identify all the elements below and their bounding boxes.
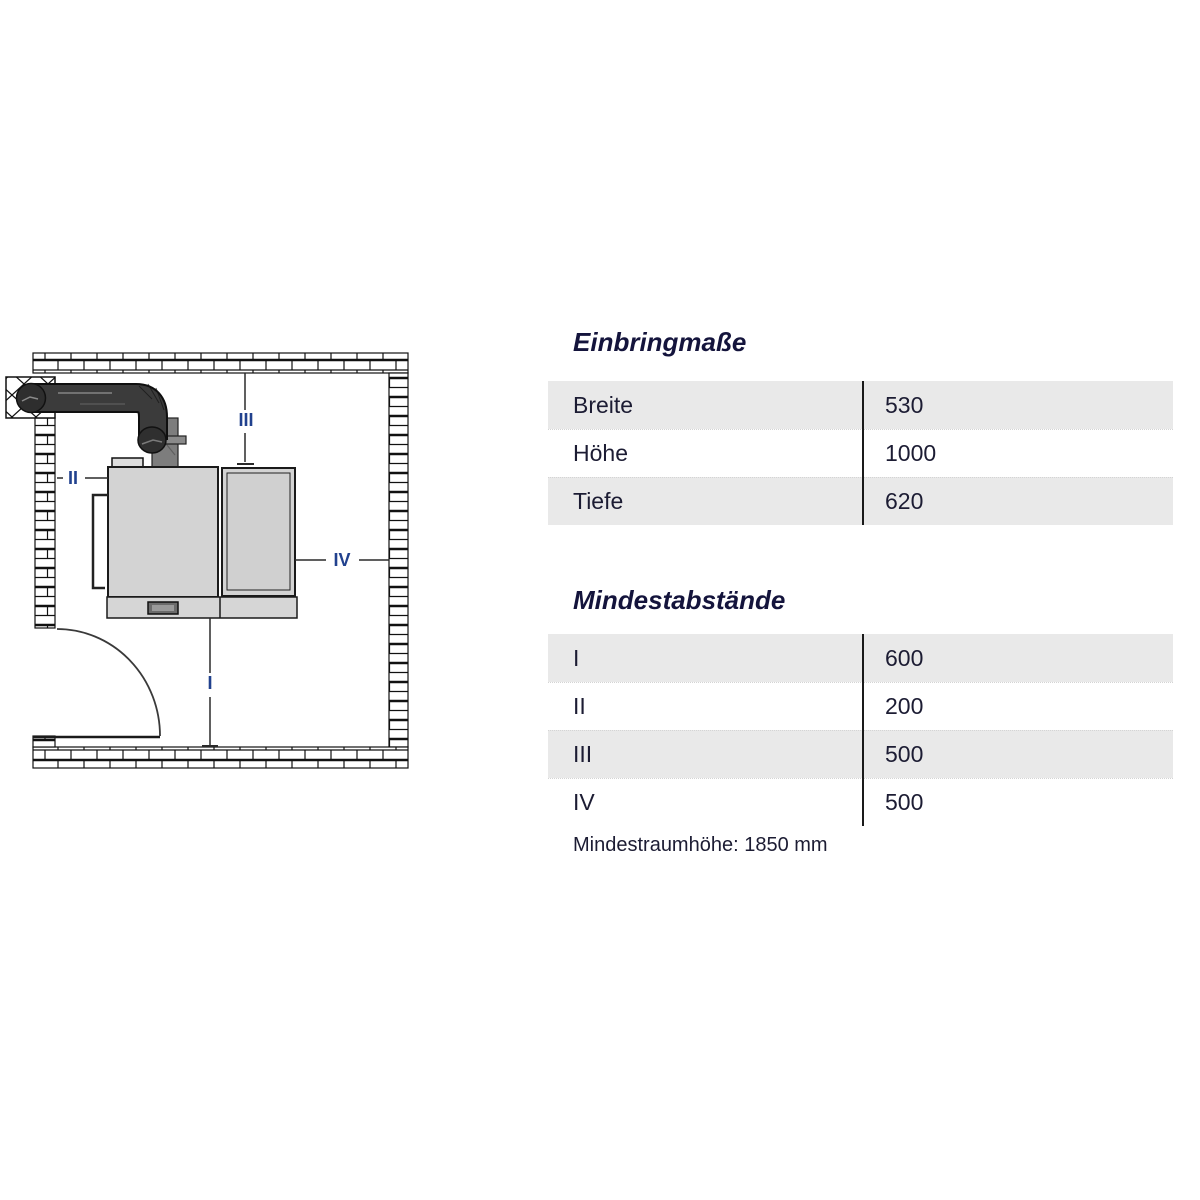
- row-value: 500: [862, 789, 923, 816]
- table-row: I 600: [548, 634, 1173, 682]
- row-value: 500: [862, 741, 923, 768]
- boiler: [93, 458, 297, 618]
- table-row: Höhe 1000: [548, 429, 1173, 477]
- right-wall: [389, 373, 408, 747]
- table-row: IV 500: [548, 778, 1173, 826]
- table-row: II 200: [548, 682, 1173, 730]
- table-row: Breite 530: [548, 381, 1173, 429]
- einbringmasse-title: Einbringmaße: [573, 327, 1173, 357]
- installation-room-diagram: III II IV I: [0, 340, 440, 780]
- row-value: 200: [862, 693, 923, 720]
- top-wall: [33, 353, 408, 373]
- table-column-divider: [862, 381, 864, 525]
- table-column-divider: [862, 634, 864, 826]
- boiler-right-panel-inset: [227, 473, 290, 590]
- row-label: I: [548, 645, 862, 672]
- left-wall: [35, 418, 55, 628]
- mindestabstaende-table: I 600 II 200 III 500 IV 500: [548, 634, 1173, 826]
- room-walls: [33, 353, 408, 768]
- row-label: Breite: [548, 392, 862, 419]
- dimension-label-i: I: [207, 673, 212, 693]
- dimension-label-ii: II: [68, 468, 78, 488]
- row-value: 1000: [862, 440, 936, 467]
- row-value: 530: [862, 392, 923, 419]
- page-canvas: III II IV I Einbringmaße Breite 530 Höhe…: [0, 0, 1200, 1200]
- boiler-base: [107, 597, 297, 618]
- boiler-name-plate-inset: [152, 605, 174, 611]
- row-label: IV: [548, 789, 862, 816]
- dimensions-content: Einbringmaße Breite 530 Höhe 1000 Tiefe …: [548, 327, 1173, 857]
- row-label: Tiefe: [548, 488, 862, 515]
- boiler-side-pipe: [93, 495, 108, 588]
- row-value: 620: [862, 488, 923, 515]
- bottom-wall: [33, 747, 408, 768]
- table-row: Tiefe 620: [548, 477, 1173, 525]
- boiler-left-panel: [108, 467, 218, 597]
- row-label: III: [548, 741, 862, 768]
- dimension-label-iii: III: [238, 410, 253, 430]
- door: [33, 629, 160, 737]
- boiler-top-fitting: [112, 458, 143, 467]
- einbringmasse-table: Breite 530 Höhe 1000 Tiefe 620: [548, 381, 1173, 525]
- row-label: II: [548, 693, 862, 720]
- mindestabstaende-title: Mindestabstände: [573, 585, 1173, 615]
- min-room-height-note: Mindestraumhöhe: 1850 mm: [573, 834, 1173, 857]
- table-row: III 500: [548, 730, 1173, 778]
- row-label: Höhe: [548, 440, 862, 467]
- dimension-label-iv: IV: [333, 550, 350, 570]
- row-value: 600: [862, 645, 923, 672]
- door-swing-arc: [57, 629, 160, 736]
